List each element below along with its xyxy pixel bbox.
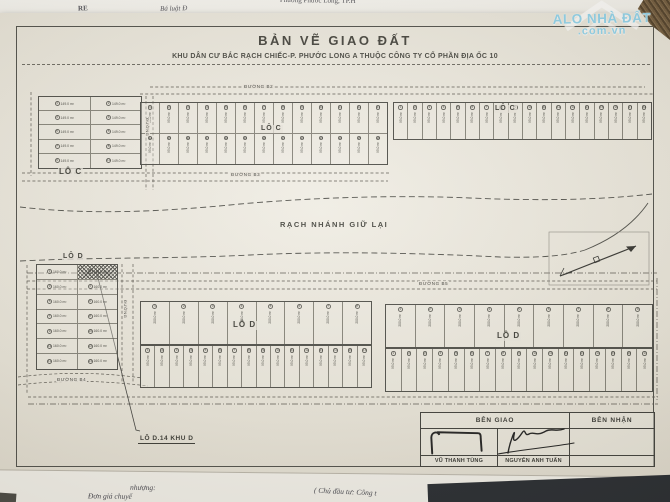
parcel-area: 95.0 m² bbox=[485, 112, 489, 123]
parcel-number: 7 bbox=[232, 348, 237, 353]
parcel-number: 9 bbox=[517, 351, 522, 356]
parcel-number: 5 bbox=[55, 129, 60, 134]
parcel-cell: 3160.0 m² bbox=[37, 280, 78, 294]
parcel-row: 11160.0 m²12160.0 m² bbox=[37, 339, 117, 354]
parcel-area: 160.0 m² bbox=[53, 344, 66, 348]
parcel-area: 95.0 m² bbox=[423, 358, 427, 369]
parcel-area: 95.0 m² bbox=[499, 112, 503, 123]
parcel-area: 95.0 m² bbox=[585, 112, 589, 123]
parcel-row: 195.0 m²295.0 m²395.0 m²495.0 m²595.0 m²… bbox=[394, 103, 651, 139]
bg-text: ( Chủ đầu tư: Công t bbox=[314, 486, 377, 498]
parcel-area: 200.0 m² bbox=[182, 311, 186, 324]
parcel-cell: 1195.0 m² bbox=[537, 103, 551, 139]
parcel-area: 200.0 m² bbox=[576, 314, 580, 327]
parcel-cell: 1695.0 m² bbox=[179, 134, 198, 165]
parcel-number: 10 bbox=[88, 329, 93, 334]
parcel-area: 160.0 m² bbox=[94, 300, 107, 304]
parcel-row: 13160.0 m²14160.0 m² bbox=[37, 354, 117, 369]
parcel-cell: 295.0 m² bbox=[155, 346, 169, 387]
block-lo-d-mid-bot: 195.0 m²295.0 m²395.0 m²495.0 m²595.0 m²… bbox=[140, 345, 372, 388]
parcel-area: 95.0 m² bbox=[438, 358, 442, 369]
parcel-area: 95.0 m² bbox=[399, 112, 403, 123]
parcel-cell: 295.0 m² bbox=[160, 103, 179, 133]
parcel-number: 17 bbox=[642, 351, 647, 356]
parcel-number: 4 bbox=[487, 307, 492, 312]
parcel-cell: 11160.0 m² bbox=[37, 339, 78, 353]
bg-text: Bá luật Đ bbox=[160, 4, 187, 13]
parcel-cell: 8200.0 m² bbox=[343, 302, 371, 344]
parcel-row: 5160.0 m²6160.0 m² bbox=[37, 295, 117, 310]
parcel-number: 7 bbox=[47, 314, 52, 319]
parcel-cell: 195.0 m² bbox=[386, 349, 402, 391]
parcel-number: 1 bbox=[391, 351, 396, 356]
parcel-number: 19 bbox=[243, 136, 248, 141]
parcel-area: 149.0 m² bbox=[112, 116, 125, 120]
signer-name-3-empty bbox=[570, 456, 654, 466]
parcel-number: 14 bbox=[595, 351, 600, 356]
parcel-area: 149.0 m² bbox=[61, 116, 74, 120]
parcel-number: 3 bbox=[427, 105, 432, 110]
parcel-number: 2 bbox=[167, 105, 172, 110]
parcel-area: 95.0 m² bbox=[486, 358, 490, 369]
parcel-number: 24 bbox=[338, 136, 343, 141]
parcel-number: 15 bbox=[167, 136, 172, 141]
parcel-number: 8 bbox=[501, 351, 506, 356]
parcel-number: 13 bbox=[570, 105, 575, 110]
parcel-area: 95.0 m² bbox=[262, 112, 266, 123]
parcel-cell: 1295.0 m² bbox=[350, 103, 369, 133]
parcel-cell: 1195.0 m² bbox=[285, 346, 299, 387]
parcel-area: 200.0 m² bbox=[636, 314, 640, 327]
parcel-number: 2 bbox=[181, 304, 186, 309]
parcel-cell: 995.0 m² bbox=[257, 346, 271, 387]
parcel-cell: 2200.0 m² bbox=[416, 305, 446, 347]
parcel-number: 17 bbox=[628, 105, 633, 110]
signature-cell-3-empty bbox=[570, 429, 654, 455]
parcel-cell: 995.0 m² bbox=[512, 349, 528, 391]
parcel-number: 8 bbox=[88, 314, 93, 319]
parcel-number: 4 bbox=[441, 105, 446, 110]
block-lo-c-east: 195.0 m²295.0 m²395.0 m²495.0 m²595.0 m²… bbox=[393, 102, 652, 140]
parcel-number: 11 bbox=[290, 348, 295, 353]
parcel-cell: 1895.0 m² bbox=[638, 103, 651, 139]
parcel-number: 20 bbox=[262, 136, 267, 141]
parcel-cell: 595.0 m² bbox=[217, 103, 236, 133]
parcel-number: 1 bbox=[145, 348, 150, 353]
parcel-cell: 495.0 m² bbox=[198, 103, 217, 133]
parcel-area: 95.0 m² bbox=[224, 142, 228, 153]
parcel-cell: 695.0 m² bbox=[465, 349, 481, 391]
parcel-area: 160.0 m² bbox=[94, 285, 107, 289]
parcel-number: 12 bbox=[564, 351, 569, 356]
label-lo-d: LÔ D bbox=[232, 321, 257, 330]
parcel-area: 200.0 m² bbox=[398, 314, 402, 327]
parcel-cell: 2160.0 m² bbox=[78, 265, 118, 279]
parcel-area: 200.0 m² bbox=[153, 311, 157, 324]
parcel-area: 200.0 m² bbox=[458, 314, 462, 327]
parcel-number: 2 bbox=[88, 269, 93, 274]
parcel-number: 14 bbox=[333, 348, 338, 353]
parcel-number: 3 bbox=[186, 105, 191, 110]
parcel-area: 95.0 m² bbox=[224, 112, 228, 123]
parcel-area: 200.0 m² bbox=[606, 314, 610, 327]
parcel-number: 1 bbox=[398, 105, 403, 110]
parcel-area: 95.0 m² bbox=[470, 112, 474, 123]
parcel-number: 6 bbox=[218, 348, 223, 353]
parcel-area: 95.0 m² bbox=[319, 355, 323, 366]
parcel-area: 149.0 m² bbox=[112, 130, 125, 134]
bg-text: Đơn giá chuyể bbox=[88, 491, 132, 500]
parcel-number: 1 bbox=[148, 105, 153, 110]
parcel-cell: 8160.0 m² bbox=[78, 310, 118, 324]
block-lo-d-east-bot: 195.0 m²295.0 m²395.0 m²495.0 m²595.0 m²… bbox=[385, 348, 653, 392]
parcel-area: 149.0 m² bbox=[61, 130, 74, 134]
parcel-number: 16 bbox=[613, 105, 618, 110]
parcel-number: 2 bbox=[407, 351, 412, 356]
parcel-area: 95.0 m² bbox=[517, 358, 521, 369]
parcel-row: 5149.0 m²6149.0 m² bbox=[39, 125, 141, 139]
bg-text: Phường Phước Long, TP.H bbox=[280, 0, 356, 5]
parcel-number: 11 bbox=[338, 105, 343, 110]
parcel-area: 95.0 m² bbox=[564, 358, 568, 369]
parcel-number: 6 bbox=[243, 105, 248, 110]
signature-cell-2 bbox=[498, 429, 570, 455]
parcel-area: 95.0 m² bbox=[528, 112, 532, 123]
parcel-number: 13 bbox=[376, 105, 381, 110]
parcel-area: 95.0 m² bbox=[501, 358, 505, 369]
parcel-number: 5 bbox=[268, 304, 273, 309]
parcel-area: 95.0 m² bbox=[542, 112, 546, 123]
parcel-cell: 9160.0 m² bbox=[37, 324, 78, 338]
parcel-cell: 695.0 m² bbox=[466, 103, 480, 139]
parcel-cell: 895.0 m² bbox=[242, 346, 256, 387]
parcel-row: 1495.0 m²1595.0 m²1695.0 m²1795.0 m²1895… bbox=[141, 134, 387, 165]
parcel-area: 95.0 m² bbox=[376, 142, 380, 153]
header-ben-nhan: BÊN NHẬN bbox=[570, 413, 654, 428]
parcel-cell: 1395.0 m² bbox=[574, 349, 590, 391]
parcel-area: 95.0 m² bbox=[627, 358, 631, 369]
parcel-number: 18 bbox=[224, 136, 229, 141]
parcel-area: 95.0 m² bbox=[261, 355, 265, 366]
parcel-cell: 595.0 m² bbox=[451, 103, 465, 139]
parcel-number: 9 bbox=[47, 329, 52, 334]
parcel-number: 9 bbox=[635, 307, 640, 312]
parcel-number: 7 bbox=[576, 307, 581, 312]
parcel-area: 95.0 m² bbox=[175, 355, 179, 366]
parcel-area: 160.0 m² bbox=[94, 359, 107, 363]
parcel-area: 95.0 m² bbox=[167, 142, 171, 153]
parcel-number: 4 bbox=[438, 351, 443, 356]
parcel-number: 21 bbox=[281, 136, 286, 141]
parcel-cell: 1895.0 m² bbox=[217, 134, 236, 165]
bg-text: RE bbox=[78, 4, 88, 12]
parcel-cell: 695.0 m² bbox=[236, 103, 255, 133]
parcel-area: 95.0 m² bbox=[376, 112, 380, 123]
parcel-cell: 1149.0 m² bbox=[39, 97, 91, 110]
parcel-cell: 6160.0 m² bbox=[78, 295, 118, 309]
signature-vu-thanh-tung bbox=[424, 427, 496, 457]
parcel-area: 160.0 m² bbox=[53, 270, 66, 274]
parcel-number: 2 bbox=[428, 307, 433, 312]
parcel-area: 95.0 m² bbox=[333, 355, 337, 366]
parcel-number: 5 bbox=[456, 105, 461, 110]
parcel-row: 7160.0 m²8160.0 m² bbox=[37, 310, 117, 325]
photo-dark-corner bbox=[0, 492, 16, 502]
watermark: ALO NHÀ ĐẤT .com.vn bbox=[536, 11, 668, 39]
parcel-area: 95.0 m² bbox=[281, 142, 285, 153]
parcel-cell: 1195.0 m² bbox=[331, 103, 350, 133]
parcel-cell: 1495.0 m² bbox=[329, 346, 343, 387]
parcel-area: 149.0 m² bbox=[112, 144, 125, 148]
parcel-number: 17 bbox=[205, 136, 210, 141]
parcel-area: 95.0 m² bbox=[305, 355, 309, 366]
parcel-cell: 395.0 m² bbox=[179, 103, 198, 133]
parcel-area: 95.0 m² bbox=[338, 142, 342, 153]
parcel-number: 14 bbox=[88, 359, 93, 364]
parcel-cell: 2595.0 m² bbox=[350, 134, 369, 165]
block-lo-c-mid: 195.0 m²295.0 m²395.0 m²495.0 m²595.0 m²… bbox=[140, 102, 388, 165]
parcel-cell: 495.0 m² bbox=[437, 103, 451, 139]
signer-name-1: VŨ THANH TÙNG bbox=[421, 456, 498, 466]
parcel-number: 11 bbox=[548, 351, 553, 356]
parcel-cell: 7160.0 m² bbox=[37, 310, 78, 324]
parcel-cell: 595.0 m² bbox=[449, 349, 465, 391]
parcel-cell: 1495.0 m² bbox=[580, 103, 594, 139]
parcel-number: 11 bbox=[47, 344, 52, 349]
signature-table: BÊN GIAO BÊN NHẬN VŨ THANH T bbox=[420, 412, 655, 467]
parcel-area: 160.0 m² bbox=[53, 314, 66, 318]
parcel-cell: 13160.0 m² bbox=[37, 354, 78, 369]
parcel-area: 95.0 m² bbox=[247, 355, 251, 366]
parcel-area: 95.0 m² bbox=[628, 112, 632, 123]
parcel-number: 7 bbox=[55, 144, 60, 149]
parcel-cell: 495.0 m² bbox=[433, 349, 449, 391]
parcel-number: 10 bbox=[319, 105, 324, 110]
parcel-cell: 9149.0 m² bbox=[39, 154, 91, 168]
parcel-area: 149.0 m² bbox=[112, 159, 125, 163]
parcel-number: 5 bbox=[203, 348, 208, 353]
parcel-number: 1 bbox=[55, 101, 60, 106]
parcel-number: 12 bbox=[357, 105, 362, 110]
parcel-cell: 3200.0 m² bbox=[445, 305, 475, 347]
parcel-number: 6 bbox=[470, 105, 475, 110]
parcel-number: 1 bbox=[398, 307, 403, 312]
parcel-area: 95.0 m² bbox=[167, 112, 171, 123]
label-lo-c: LÔ C bbox=[260, 125, 283, 133]
parcel-area: 95.0 m² bbox=[319, 142, 323, 153]
parcel-number: 16 bbox=[362, 348, 367, 353]
parcel-row: 3160.0 m²4160.0 m² bbox=[37, 280, 117, 295]
parcel-cell: 1200.0 m² bbox=[141, 302, 170, 344]
parcel-cell: 295.0 m² bbox=[402, 349, 418, 391]
parcel-callout-label: LÔ D.14 KHU D bbox=[138, 435, 195, 444]
parcel-number: 25 bbox=[357, 136, 362, 141]
parcel-cell: 1295.0 m² bbox=[559, 349, 575, 391]
parcel-cell: 2149.0 m² bbox=[91, 97, 142, 110]
parcel-number: 22 bbox=[300, 136, 305, 141]
parcel-cell: 695.0 m² bbox=[213, 346, 227, 387]
parcel-number: 15 bbox=[348, 348, 353, 353]
parcel-number: 8 bbox=[355, 304, 360, 309]
parcel-cell: 1695.0 m² bbox=[358, 346, 371, 387]
parcel-cell: 6200.0 m² bbox=[285, 302, 314, 344]
parcel-area: 95.0 m² bbox=[218, 355, 222, 366]
bg-text: nhượng: bbox=[130, 483, 156, 492]
parcel-row: 3149.0 m²4149.0 m² bbox=[39, 111, 141, 125]
parcel-number: 2 bbox=[160, 348, 165, 353]
parcel-number: 3 bbox=[174, 348, 179, 353]
parcel-area: 95.0 m² bbox=[262, 142, 266, 153]
parcel-area: 160.0 m² bbox=[53, 329, 66, 333]
parcel-area: 95.0 m² bbox=[300, 112, 304, 123]
parcel-number: 18 bbox=[642, 105, 647, 110]
parcel-number: 6 bbox=[106, 129, 111, 134]
parcel-area: 95.0 m² bbox=[642, 112, 646, 123]
parcel-number: 10 bbox=[527, 105, 532, 110]
parcel-cell: 195.0 m² bbox=[141, 103, 160, 133]
parcel-area: 95.0 m² bbox=[186, 142, 190, 153]
parcel-cell: 2495.0 m² bbox=[331, 134, 350, 165]
parcel-cell: 2095.0 m² bbox=[255, 134, 274, 165]
parcel-area: 95.0 m² bbox=[533, 358, 537, 369]
parcel-area: 95.0 m² bbox=[319, 112, 323, 123]
parcel-cell: 1695.0 m² bbox=[609, 103, 623, 139]
parcel-cell: 2295.0 m² bbox=[293, 134, 312, 165]
parcel-area: 200.0 m² bbox=[268, 311, 272, 324]
parcel-cell: 2695.0 m² bbox=[369, 134, 387, 165]
parcel-cell: 10160.0 m² bbox=[78, 324, 118, 338]
parcel-area: 200.0 m² bbox=[547, 314, 551, 327]
parcel-area: 95.0 m² bbox=[614, 112, 618, 123]
parcel-cell: 1795.0 m² bbox=[198, 134, 217, 165]
parcel-number: 10 bbox=[532, 351, 537, 356]
signature-row bbox=[421, 429, 654, 455]
parcel-number: 10 bbox=[106, 158, 111, 163]
parcel-cell: 295.0 m² bbox=[408, 103, 422, 139]
parcel-cell: 2395.0 m² bbox=[312, 134, 331, 165]
parcel-cell: 1695.0 m² bbox=[622, 349, 638, 391]
parcel-row: 9149.0 m²10149.0 m² bbox=[39, 154, 141, 168]
parcel-area: 160.0 m² bbox=[94, 344, 107, 348]
parcel-cell: 4160.0 m² bbox=[78, 280, 118, 294]
parcel-number: 5 bbox=[454, 351, 459, 356]
parcel-number: 13 bbox=[580, 351, 585, 356]
parcel-area: 95.0 m² bbox=[470, 358, 474, 369]
parcel-cell: 495.0 m² bbox=[184, 346, 198, 387]
parcel-area: 95.0 m² bbox=[205, 142, 209, 153]
label-lo-d: LÔ D bbox=[62, 253, 85, 261]
parcel-number: 1 bbox=[47, 269, 52, 274]
parcel-area: 95.0 m² bbox=[571, 112, 575, 123]
parcel-number: 13 bbox=[47, 359, 52, 364]
parcel-number: 4 bbox=[106, 115, 111, 120]
parcel-number: 4 bbox=[205, 105, 210, 110]
parcel-cell: 1095.0 m² bbox=[523, 103, 537, 139]
parcel-number: 8 bbox=[106, 144, 111, 149]
parcel-area: 95.0 m² bbox=[205, 112, 209, 123]
parcel-cell: 195.0 m² bbox=[141, 346, 155, 387]
parcel-area: 160.0 m² bbox=[53, 359, 66, 363]
parcel-cell: 1995.0 m² bbox=[236, 134, 255, 165]
parcel-area: 200.0 m² bbox=[487, 314, 491, 327]
parcel-cell: 5149.0 m² bbox=[39, 125, 91, 138]
parcel-area: 95.0 m² bbox=[513, 112, 517, 123]
parcel-number: 15 bbox=[611, 351, 616, 356]
parcel-number: 3 bbox=[55, 115, 60, 120]
parcel-area: 200.0 m² bbox=[297, 311, 301, 324]
parcel-row: 1160.0 m²2160.0 m² bbox=[37, 265, 117, 280]
parcel-area: 95.0 m² bbox=[357, 142, 361, 153]
parcel-area: 149.0 m² bbox=[61, 144, 74, 148]
parcel-number: 4 bbox=[239, 304, 244, 309]
parcel-area: 200.0 m² bbox=[355, 311, 359, 324]
parcel-number: 3 bbox=[457, 307, 462, 312]
parcel-cell: 395.0 m² bbox=[423, 103, 437, 139]
parcel-number: 2 bbox=[413, 105, 418, 110]
parcel-number: 7 bbox=[262, 105, 267, 110]
parcel-cell: 1495.0 m² bbox=[141, 134, 160, 165]
parcel-cell: 4149.0 m² bbox=[91, 111, 142, 124]
parcel-number: 10 bbox=[275, 348, 280, 353]
street-label: ĐƯỜNG B5 bbox=[418, 281, 449, 286]
watermark-line2: .com.vn bbox=[536, 25, 668, 39]
parcel-cell: 1595.0 m² bbox=[606, 349, 622, 391]
parcel-number: 9 bbox=[261, 348, 266, 353]
parcel-cell: 1395.0 m² bbox=[566, 103, 580, 139]
parcel-number: 6 bbox=[297, 304, 302, 309]
parcel-cell: 395.0 m² bbox=[170, 346, 184, 387]
parcel-area: 95.0 m² bbox=[276, 355, 280, 366]
parcel-area: 149.0 m² bbox=[61, 102, 74, 106]
parcel-area: 160.0 m² bbox=[94, 270, 107, 274]
parcel-cell: 9200.0 m² bbox=[623, 305, 652, 347]
parcel-cell: 1295.0 m² bbox=[300, 346, 314, 387]
parcel-area: 95.0 m² bbox=[442, 112, 446, 123]
parcel-area: 95.0 m² bbox=[556, 112, 560, 123]
parcel-area: 95.0 m² bbox=[146, 355, 150, 366]
parcel-cell: 1795.0 m² bbox=[623, 103, 637, 139]
parcel-number: 8 bbox=[606, 307, 611, 312]
parcel-cell: 1595.0 m² bbox=[595, 103, 609, 139]
parcel-cell: 10149.0 m² bbox=[91, 154, 142, 168]
label-lo-c: LÔ C bbox=[58, 168, 83, 177]
parcel-cell: 2200.0 m² bbox=[170, 302, 199, 344]
street-label: ĐƯỜNG B2 bbox=[243, 84, 274, 89]
parcel-number: 4 bbox=[189, 348, 194, 353]
parcel-number: 5 bbox=[517, 307, 522, 312]
parcel-cell: 7200.0 m² bbox=[314, 302, 343, 344]
parcel-cell: 1095.0 m² bbox=[312, 103, 331, 133]
parcel-cell: 1095.0 m² bbox=[527, 349, 543, 391]
parcel-cell: 795.0 m² bbox=[480, 349, 496, 391]
parcel-area: 149.0 m² bbox=[61, 159, 74, 163]
parcel-cell: 1395.0 m² bbox=[314, 346, 328, 387]
parcel-cell: 1795.0 m² bbox=[637, 349, 652, 391]
parcel-area: 200.0 m² bbox=[211, 311, 215, 324]
parcel-area: 160.0 m² bbox=[53, 285, 66, 289]
parcel-area: 95.0 m² bbox=[595, 358, 599, 369]
parcel-number: 26 bbox=[376, 136, 381, 141]
parcel-area: 95.0 m² bbox=[348, 355, 352, 366]
parcel-area: 95.0 m² bbox=[407, 358, 411, 369]
parcel-number: 7 bbox=[485, 351, 490, 356]
parcel-number: 9 bbox=[55, 158, 60, 163]
parcel-number: 12 bbox=[304, 348, 309, 353]
parcel-area: 95.0 m² bbox=[243, 142, 247, 153]
parcel-area: 160.0 m² bbox=[94, 329, 107, 333]
parcel-area: 95.0 m² bbox=[599, 112, 603, 123]
signer-name-2: NGUYỄN ANH TUẤN bbox=[498, 456, 570, 466]
